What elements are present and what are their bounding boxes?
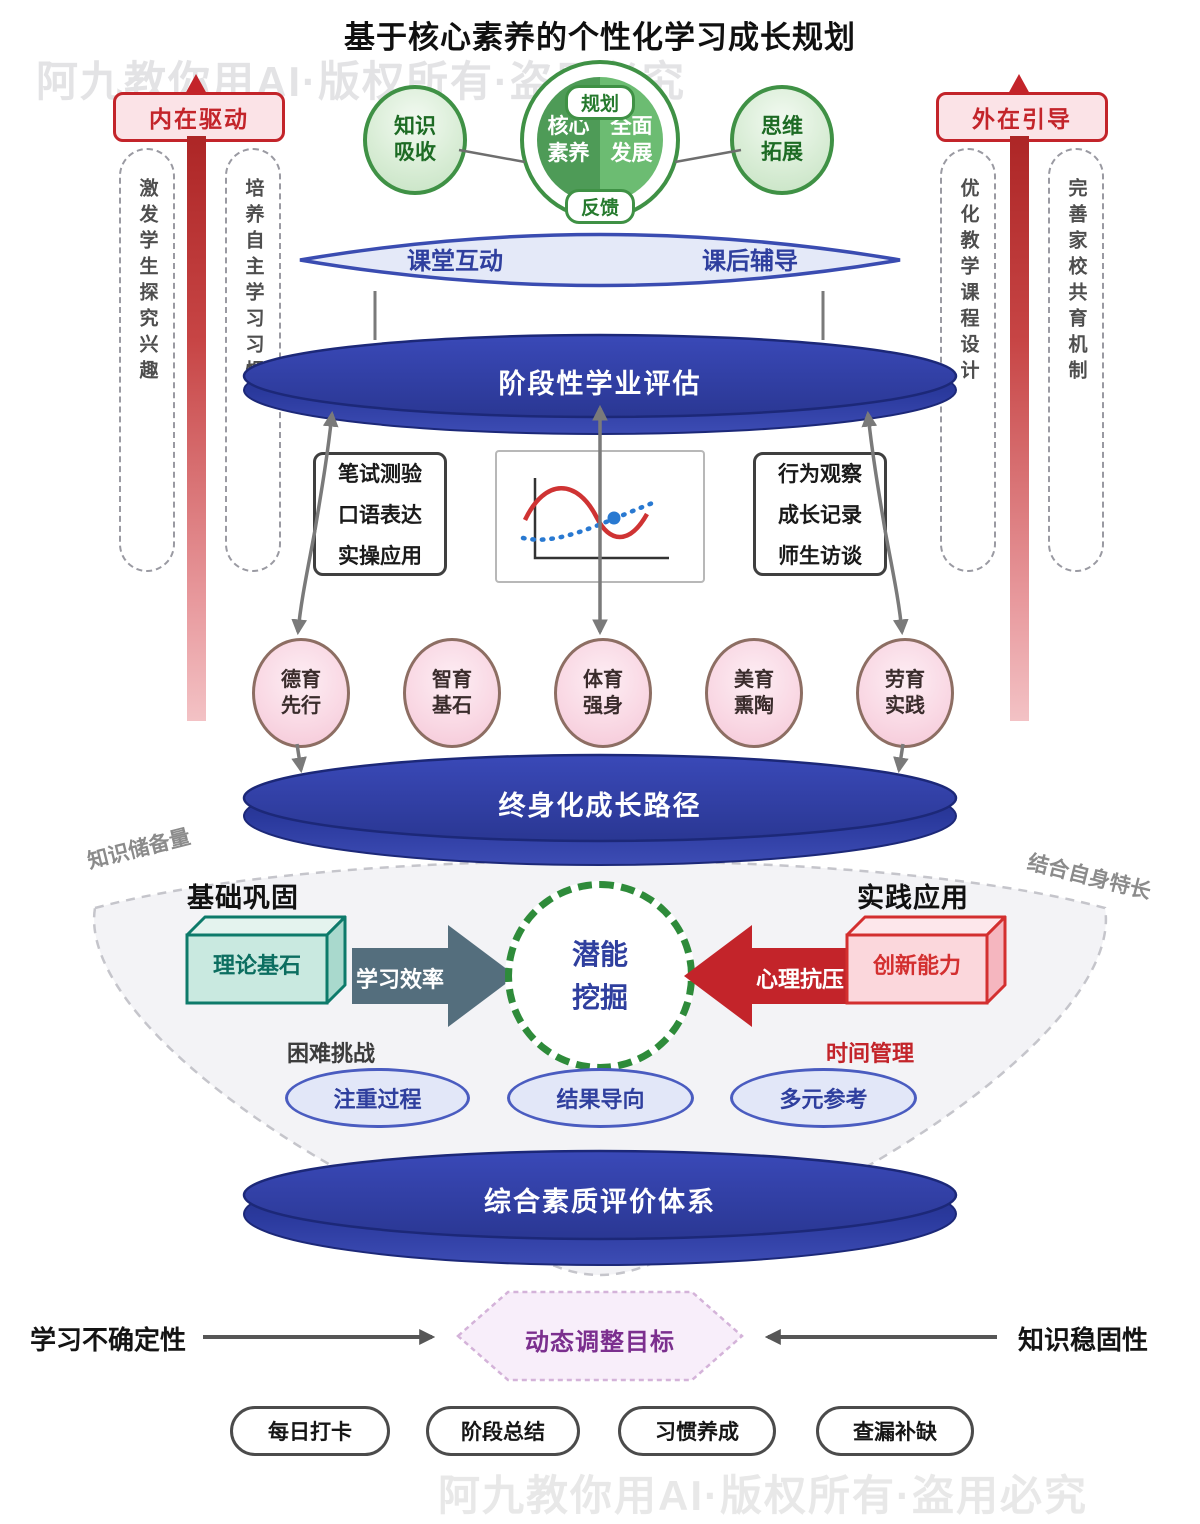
hexagon-label: 动态调整目标 bbox=[450, 1322, 750, 1357]
plan-tag: 规划 bbox=[565, 85, 635, 120]
label-challenge: 困难挑战 bbox=[287, 1036, 375, 1068]
labor-line2: 实践 bbox=[885, 693, 925, 719]
intellectual-education-circle: 智育 基石 bbox=[403, 638, 501, 748]
quality-system-label: 综合素质评价体系 bbox=[240, 1180, 960, 1219]
moral-line2: 先行 bbox=[281, 693, 321, 719]
theory-box-label: 理论基石 bbox=[187, 948, 327, 980]
core-left-line2: 素养 bbox=[548, 140, 590, 167]
assessment-disc-label: 阶段性学业评估 bbox=[240, 362, 960, 401]
physical-education-circle: 体育 强身 bbox=[554, 638, 652, 748]
aesthetic-line2: 熏陶 bbox=[734, 693, 774, 719]
potential-line1: 潜能 bbox=[572, 933, 628, 976]
observe-method-3: 师生访谈 bbox=[778, 540, 862, 570]
intellectual-line1: 智育 bbox=[432, 667, 472, 693]
exam-methods-box: 笔试测验 口语表达 实操应用 bbox=[313, 452, 447, 576]
moral-line1: 德育 bbox=[281, 667, 321, 693]
left-red-pole bbox=[187, 136, 206, 721]
habit-building-pill: 习惯养成 bbox=[618, 1406, 776, 1456]
knowledge-circle-line1: 知识 bbox=[394, 114, 436, 140]
left-pole-tip-icon bbox=[185, 74, 207, 94]
lens-left-label: 课堂互动 bbox=[350, 241, 560, 276]
stability-label: 知识稳固性 bbox=[1018, 1320, 1148, 1357]
left-capsule-1: 激发学生探究兴趣 bbox=[119, 148, 175, 572]
right-pole-tip-icon bbox=[1008, 74, 1030, 94]
right-capsule-2-text: 完善家校共育机制 bbox=[1063, 178, 1090, 386]
thinking-circle-line1: 思维 bbox=[761, 114, 803, 140]
left-capsule-1-text: 激发学生探究兴趣 bbox=[134, 178, 161, 386]
moral-education-circle: 德育 先行 bbox=[252, 638, 350, 748]
knowledge-circle-line2: 吸收 bbox=[394, 140, 436, 166]
label-time-management: 时间管理 bbox=[826, 1036, 914, 1068]
result-pill: 结果导向 bbox=[507, 1068, 694, 1128]
observe-method-1: 行为观察 bbox=[778, 458, 862, 488]
exam-method-1: 笔试测验 bbox=[338, 458, 422, 488]
knowledge-circle: 知识 吸收 bbox=[363, 85, 467, 195]
lens-right-label: 课后辅导 bbox=[645, 241, 855, 276]
efficiency-arrow-label: 学习效率 bbox=[352, 962, 448, 994]
reference-pill: 多元参考 bbox=[730, 1068, 917, 1128]
left-banner: 内在驱动 bbox=[113, 92, 285, 142]
gap-filling-pill: 查漏补缺 bbox=[816, 1406, 974, 1456]
daily-checkin-pill: 每日打卡 bbox=[230, 1406, 390, 1456]
potential-line2: 挖掘 bbox=[572, 976, 628, 1019]
stage-summary-pill: 阶段总结 bbox=[426, 1406, 580, 1456]
labor-line1: 劳育 bbox=[885, 667, 925, 693]
thinking-circle: 思维 拓展 bbox=[730, 85, 834, 195]
exam-method-3: 实操应用 bbox=[338, 540, 422, 570]
thinking-circle-line2: 拓展 bbox=[761, 140, 803, 166]
intellectual-line2: 基石 bbox=[432, 693, 472, 719]
trend-chart-box bbox=[495, 450, 705, 583]
observe-method-2: 成长记录 bbox=[778, 499, 862, 529]
feedback-tag: 反馈 bbox=[565, 189, 635, 224]
uncertainty-label: 学习不确定性 bbox=[30, 1320, 186, 1357]
infographic-canvas: 阿九教你用AI·版权所有·盗用必究 阿九教你用AI·版权所有·盗用必究 基于核心… bbox=[0, 0, 1200, 1524]
right-red-pole bbox=[1010, 136, 1029, 721]
potential-circle: 潜能 挖掘 bbox=[505, 881, 695, 1071]
labor-education-circle: 劳育 实践 bbox=[856, 638, 954, 748]
right-capsule-2: 完善家校共育机制 bbox=[1048, 148, 1104, 572]
core-right-line2: 发展 bbox=[611, 140, 653, 167]
physical-line2: 强身 bbox=[583, 693, 623, 719]
aesthetic-education-circle: 美育 熏陶 bbox=[705, 638, 803, 748]
process-pill: 注重过程 bbox=[285, 1068, 470, 1128]
innovation-box-label: 创新能力 bbox=[847, 948, 987, 980]
physical-line1: 体育 bbox=[583, 667, 623, 693]
lifelong-path-label: 终身化成长路径 bbox=[240, 784, 960, 823]
observation-methods-box: 行为观察 成长记录 师生访谈 bbox=[753, 452, 887, 576]
resilience-arrow-label: 心理抗压 bbox=[752, 962, 848, 994]
trend-chart-icon bbox=[497, 452, 702, 580]
exam-method-2: 口语表达 bbox=[338, 499, 422, 529]
aesthetic-line1: 美育 bbox=[734, 667, 774, 693]
right-banner: 外在引导 bbox=[936, 92, 1108, 142]
